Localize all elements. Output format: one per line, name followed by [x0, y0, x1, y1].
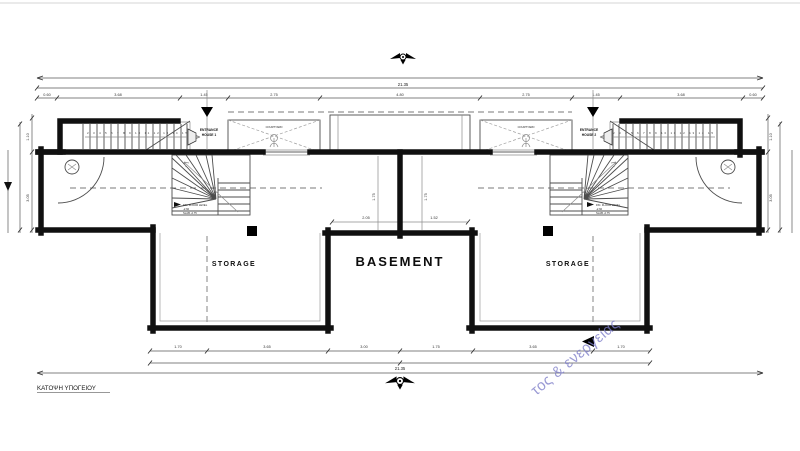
dim-right-seg: 3.05 — [769, 194, 773, 201]
dim-bottom-seg: 1.70 — [617, 345, 624, 349]
courtyard-left: COURTYARD — [228, 120, 320, 152]
dim-top-seg: 2.75 — [522, 93, 529, 97]
dim-bottom-total: 21.35 — [395, 366, 406, 371]
level-flag-icon — [587, 202, 594, 207]
courtyard-right: COURTYARD — [480, 120, 572, 152]
dim-right-seg: 1.10 — [769, 133, 773, 140]
dim-top-seg: 0.60 — [749, 93, 756, 97]
dim-top-seg: 3.68 — [114, 93, 121, 97]
dimension-lines-left: 1.10 3.05 — [4, 114, 34, 233]
dim-top-seg: 1.45 — [200, 93, 207, 97]
dim-bottom-seg: 3.00 — [360, 345, 367, 349]
entrance-label: ENTRANCE — [580, 128, 599, 132]
centre-terrace-outline — [330, 115, 470, 150]
stair-straight-left: 2 3 4 5 6 7 8 9 10 11 12 13 14 15 — [83, 121, 200, 150]
room-label-basement: BASEMENT — [356, 254, 445, 269]
dim-centre-seg: 2.05 — [362, 216, 369, 220]
room-label-storage-right: STORAGE — [546, 261, 590, 268]
stair-tread-numbers: 2 3 4 5 6 7 8 9 10 11 12 13 14 15 — [613, 131, 713, 135]
entrance-house1: ENTRANCE HOUSE 1 — [188, 90, 219, 150]
dim-bottom-seg: 3.65 — [529, 345, 536, 349]
dim-left-seg: 3.05 — [26, 194, 30, 201]
dim-left-seg: 1.10 — [26, 133, 30, 140]
dimension-lines-bottom: 1.70 3.65 3.00 1.75 3.65 1.70 21.35 — [37, 345, 763, 375]
dim-centre-vert: 1.75 — [372, 193, 376, 200]
stair-tread-numbers: 2 3 4 5 6 7 8 9 10 11 12 13 14 15 — [87, 131, 187, 135]
floor-plan-canvas: 21.35 0.60 3.68 1.45 2.75 4.80 2.75 1.45… — [0, 0, 800, 451]
courtyard-label: COURTYARD — [266, 125, 283, 129]
level-note-line: -2.60 — [183, 207, 190, 211]
dim-centre-vert: 1.75 — [424, 193, 428, 200]
entrance-label: ENTRANCE — [200, 128, 219, 132]
level-note-line: FIN. FLOOR LEVEL — [596, 203, 621, 207]
caption-block: ΚΑΤΟΨΗ ΥΠΟΓΕΙΟΥ — [37, 385, 110, 393]
dim-bottom-seg: 1.70 — [174, 345, 181, 349]
dimension-lines-right: 1.10 3.05 — [766, 114, 792, 233]
entrance-arrow-icon — [201, 107, 213, 117]
level-note-left: FIN. FLOOR LEVEL -2.60 SLAB -2.75 — [174, 202, 208, 215]
entrance-label: HOUSE 2 — [582, 133, 597, 137]
dimension-lines-top: 21.35 0.60 3.68 1.45 2.75 4.80 2.75 1.45… — [35, 76, 765, 101]
entrance-label: HOUSE 1 — [202, 133, 217, 137]
tree-icon — [522, 135, 530, 148]
dim-bottom-seg: 3.65 — [263, 345, 270, 349]
dim-top-seg: 1.45 — [592, 93, 599, 97]
dim-bottom-seg: 1.75 — [432, 345, 439, 349]
courtyard-label: COURTYARD — [518, 125, 535, 129]
walls — [38, 121, 762, 331]
level-note-line: SLAB -2.75 — [183, 211, 197, 215]
dim-top-seg: 3.68 — [677, 93, 684, 97]
door-icon — [604, 129, 612, 145]
level-arrow-left — [4, 182, 12, 191]
tree-icon — [270, 135, 278, 148]
floor-plan-page: 21.35 0.60 3.68 1.45 2.75 4.80 2.75 1.45… — [0, 0, 800, 451]
north-arrow-icon — [390, 53, 416, 65]
level-note-line: -2.60 — [596, 207, 603, 211]
door-icon — [188, 129, 196, 145]
level-note-line: SLAB -2.75 — [596, 211, 610, 215]
dim-top-seg: 0.60 — [43, 93, 50, 97]
dim-top-total: 21.35 — [398, 82, 409, 87]
dim-centre-seg: 1.52 — [430, 216, 437, 220]
stair-straight-right: 2 3 4 5 6 7 8 9 10 11 12 13 14 15 — [600, 121, 717, 150]
plan-caption: ΚΑΤΟΨΗ ΥΠΟΓΕΙΟΥ — [37, 385, 96, 392]
entrance-arrow-icon — [587, 107, 599, 117]
dim-top-seg: 2.75 — [270, 93, 277, 97]
column — [543, 226, 553, 236]
north-arrow-icon — [385, 376, 415, 389]
level-note-line: FIN. FLOOR LEVEL — [183, 203, 208, 207]
column — [247, 226, 257, 236]
dim-top-seg: 4.80 — [396, 93, 403, 97]
room-label-storage-left: STORAGE — [212, 261, 256, 268]
entrance-house2: ENTRANCE HOUSE 2 — [580, 90, 612, 150]
level-note-right: FIN. FLOOR LEVEL -2.60 SLAB -2.75 — [587, 202, 621, 215]
